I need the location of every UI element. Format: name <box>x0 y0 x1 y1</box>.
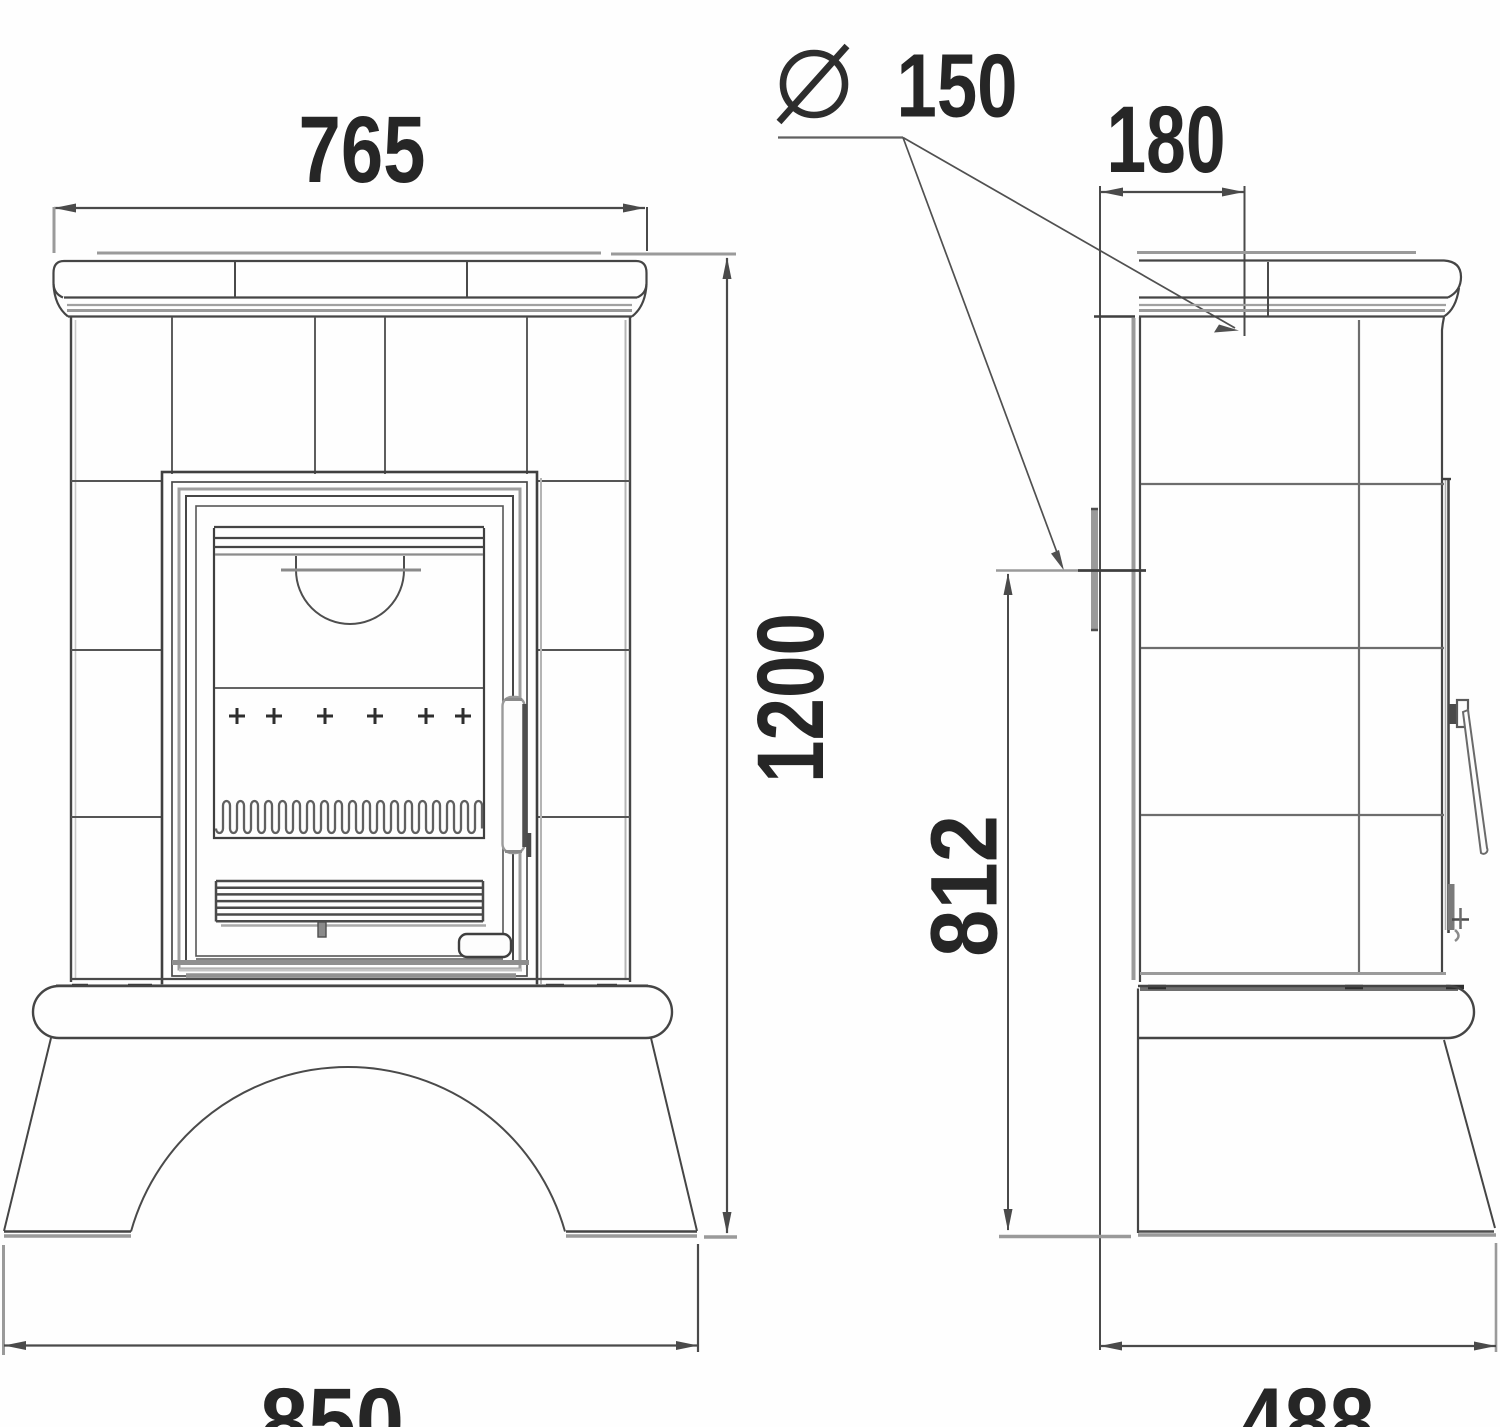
svg-text:850: 850 <box>260 1369 404 1427</box>
svg-text:765: 765 <box>299 97 426 203</box>
svg-text:180: 180 <box>1107 87 1226 193</box>
svg-text:150: 150 <box>897 37 1018 137</box>
svg-text:812: 812 <box>912 815 1018 957</box>
svg-text:488: 488 <box>1240 1369 1375 1427</box>
svg-text:1200: 1200 <box>738 613 844 783</box>
